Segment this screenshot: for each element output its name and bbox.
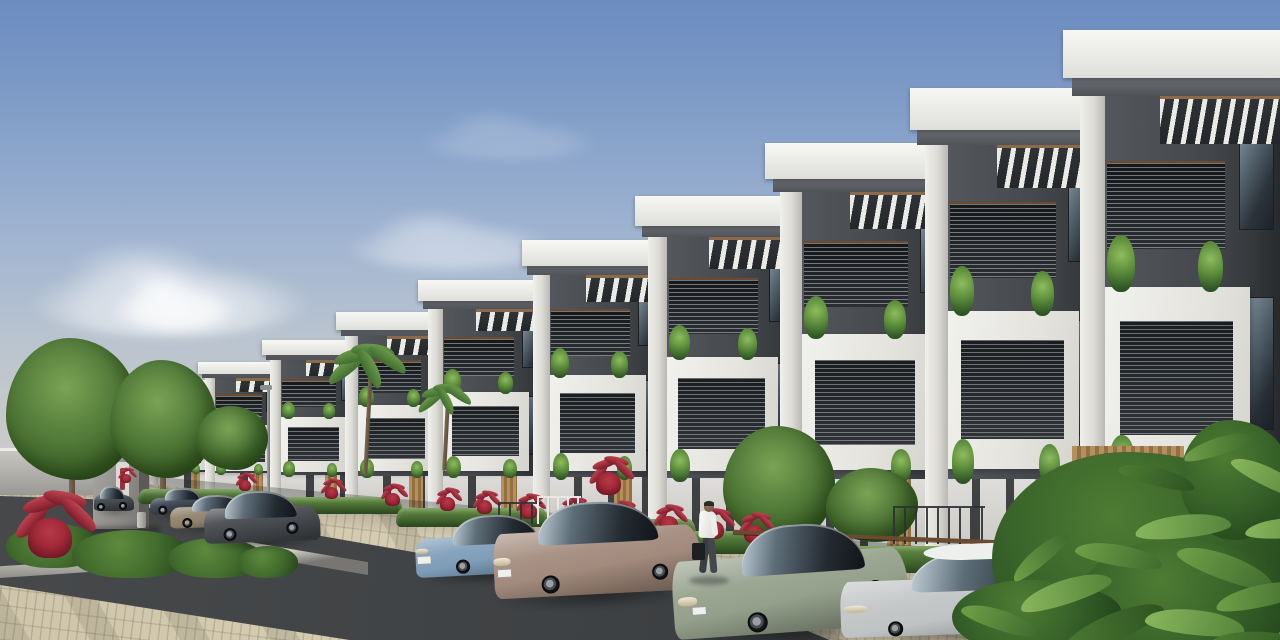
foreground-foliage-layer — [0, 0, 1280, 640]
scene-apartment-render — [0, 0, 1280, 640]
